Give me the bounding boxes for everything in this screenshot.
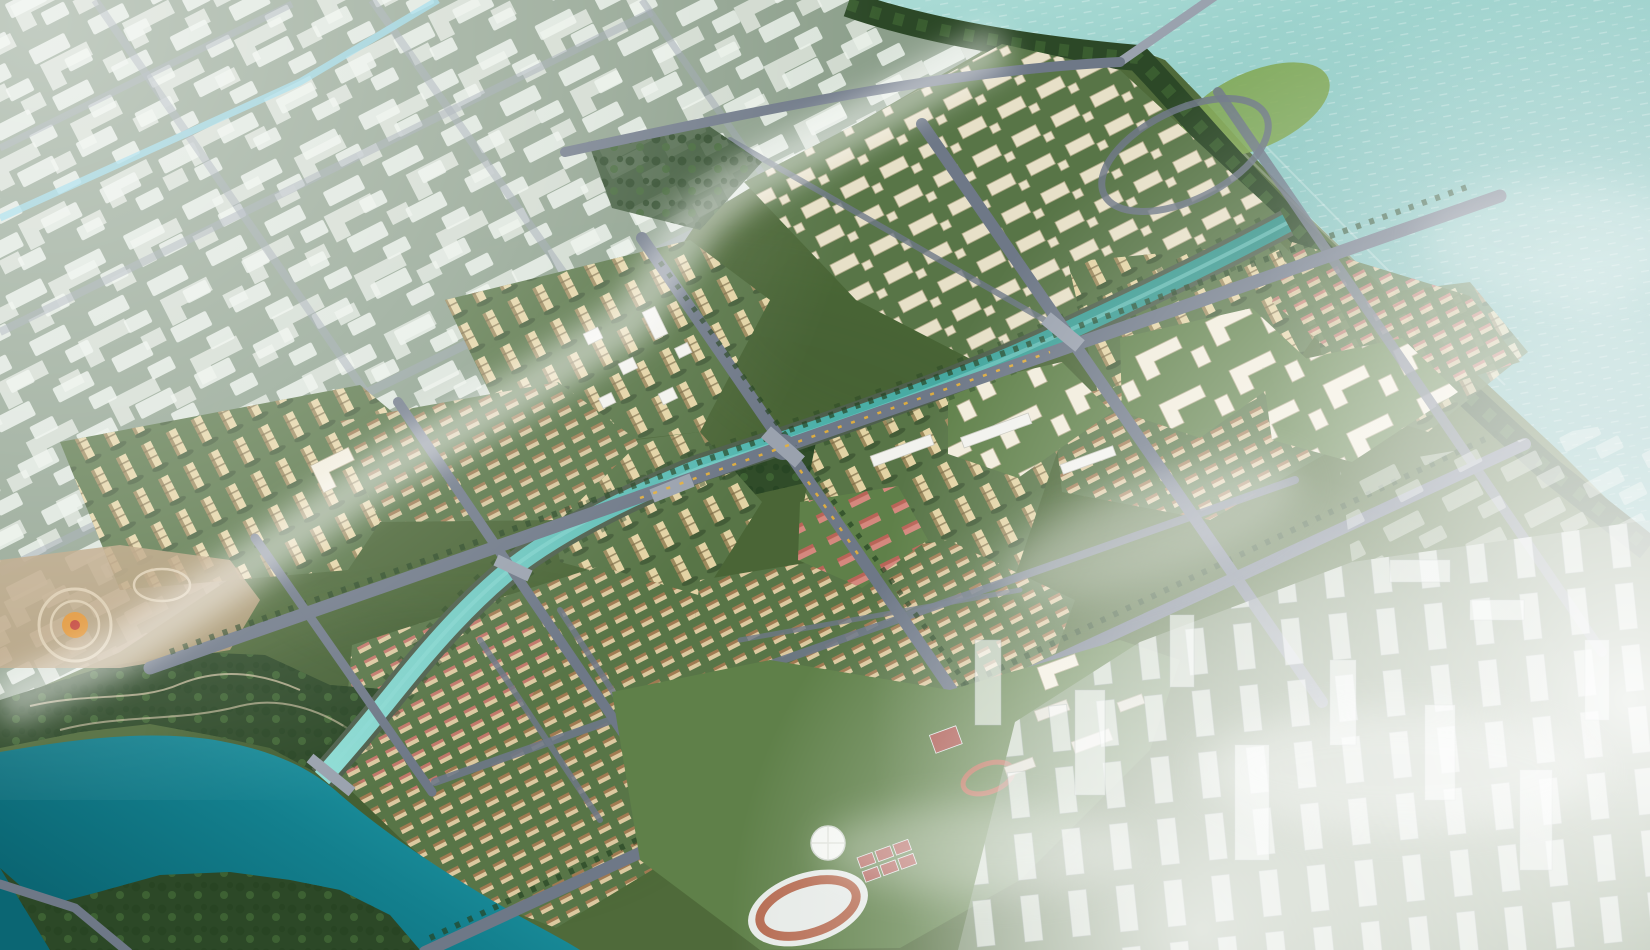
mist-streak — [820, 805, 1140, 895]
fog-and-haze — [0, 0, 1650, 950]
masterplan-scene: Aerial rendering of a waterfront urban m… — [0, 0, 1650, 950]
mist-streak — [1200, 710, 1600, 830]
masterplan-rendering: Aerial rendering of a waterfront urban m… — [0, 0, 1650, 950]
